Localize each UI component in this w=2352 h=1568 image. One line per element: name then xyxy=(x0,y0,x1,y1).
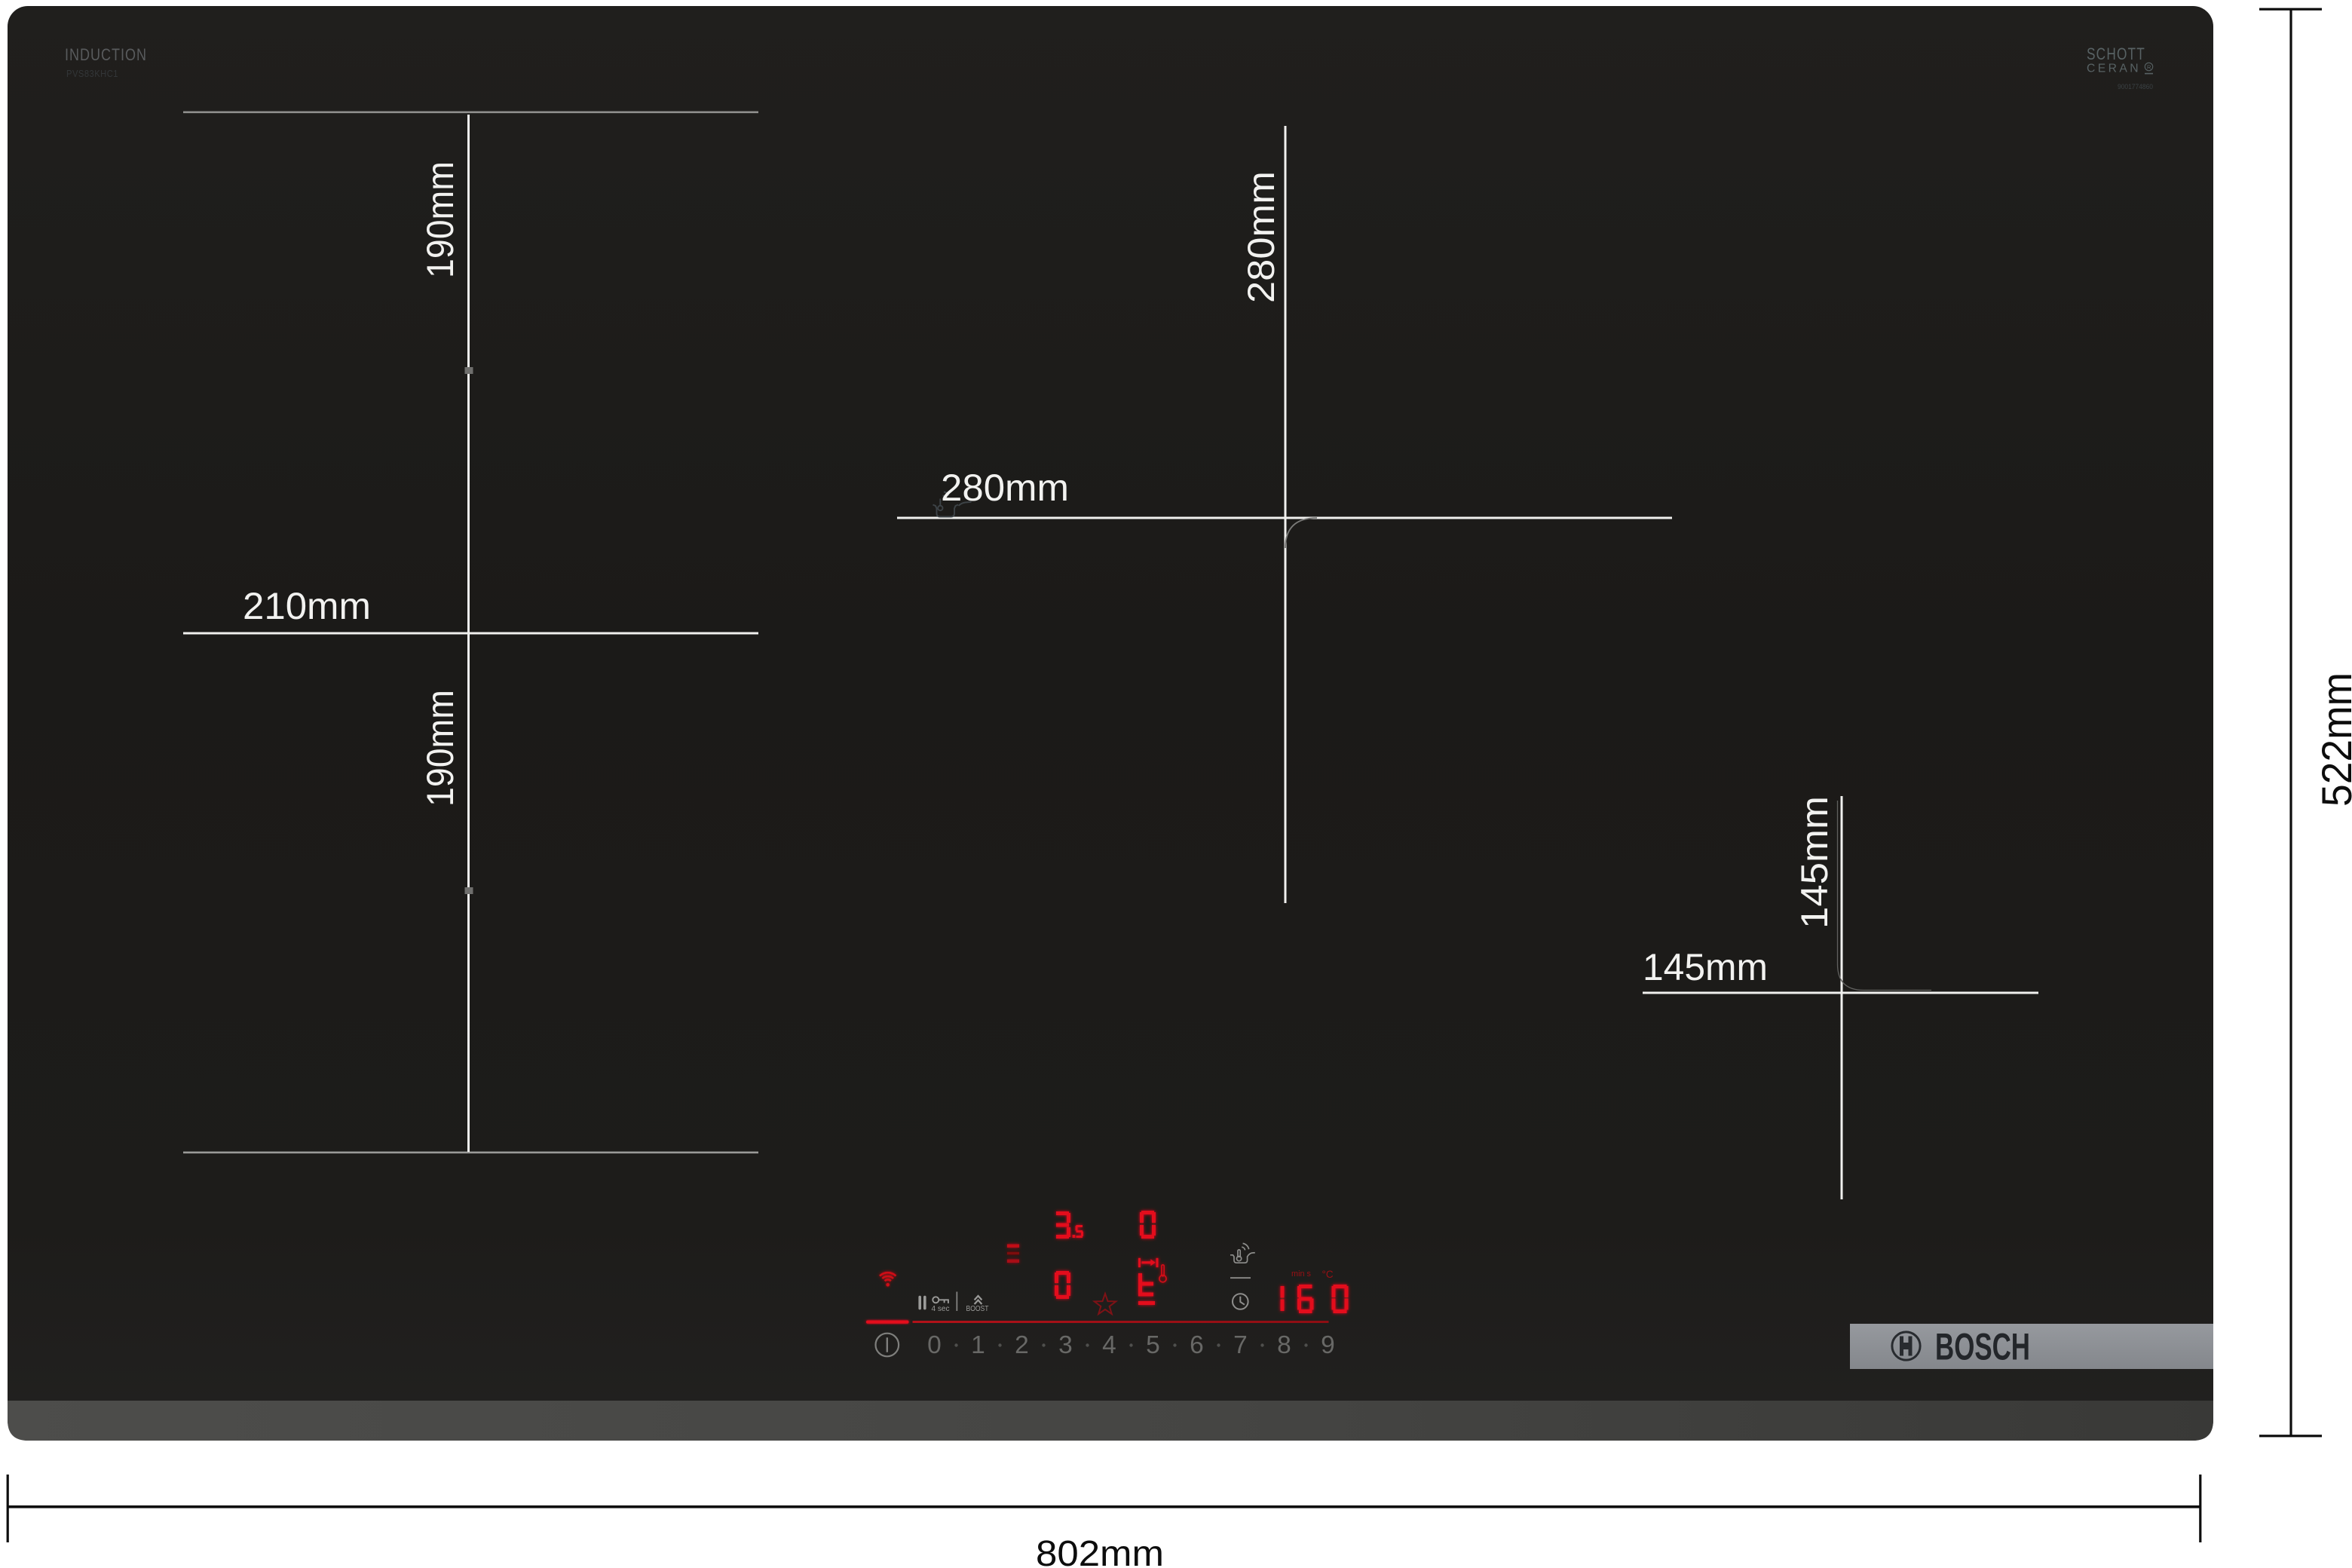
svg-text:9001774860: 9001774860 xyxy=(2118,83,2153,91)
svg-text:BOSCH: BOSCH xyxy=(1935,1326,2030,1368)
svg-text:802mm: 802mm xyxy=(1036,1534,1164,1568)
svg-text:3: 3 xyxy=(1058,1331,1073,1359)
svg-text:4 sec: 4 sec xyxy=(932,1304,950,1313)
svg-text:8: 8 xyxy=(1277,1331,1291,1359)
svg-text:0: 0 xyxy=(927,1331,942,1359)
svg-text:280mm: 280mm xyxy=(941,467,1069,509)
svg-text:CERAN: CERAN xyxy=(2087,63,2141,75)
svg-text:BOOST: BOOST xyxy=(966,1304,989,1313)
svg-text:PVS83KHC1: PVS83KHC1 xyxy=(66,68,118,79)
svg-text:280mm: 280mm xyxy=(1240,171,1282,303)
svg-text:7: 7 xyxy=(1233,1331,1248,1359)
svg-text:min s: min s xyxy=(1291,1269,1311,1279)
svg-text:SCHOTT: SCHOTT xyxy=(2087,44,2145,63)
svg-text:145mm: 145mm xyxy=(1643,946,1768,988)
svg-text:210mm: 210mm xyxy=(243,585,371,627)
svg-text:145mm: 145mm xyxy=(1793,796,1836,929)
svg-text:9: 9 xyxy=(1321,1331,1335,1359)
svg-text:1: 1 xyxy=(971,1331,985,1359)
svg-text:INDUCTION: INDUCTION xyxy=(65,45,147,64)
svg-text:190mm: 190mm xyxy=(419,161,461,278)
svg-text:R: R xyxy=(2147,64,2151,71)
svg-text:2: 2 xyxy=(1015,1331,1029,1359)
svg-text:°C: °C xyxy=(1322,1269,1334,1280)
svg-text:522mm: 522mm xyxy=(2313,672,2352,807)
svg-text:6: 6 xyxy=(1190,1331,1204,1359)
svg-text:190mm: 190mm xyxy=(419,690,461,807)
svg-text:4: 4 xyxy=(1102,1331,1116,1359)
svg-text:5: 5 xyxy=(1146,1331,1160,1359)
